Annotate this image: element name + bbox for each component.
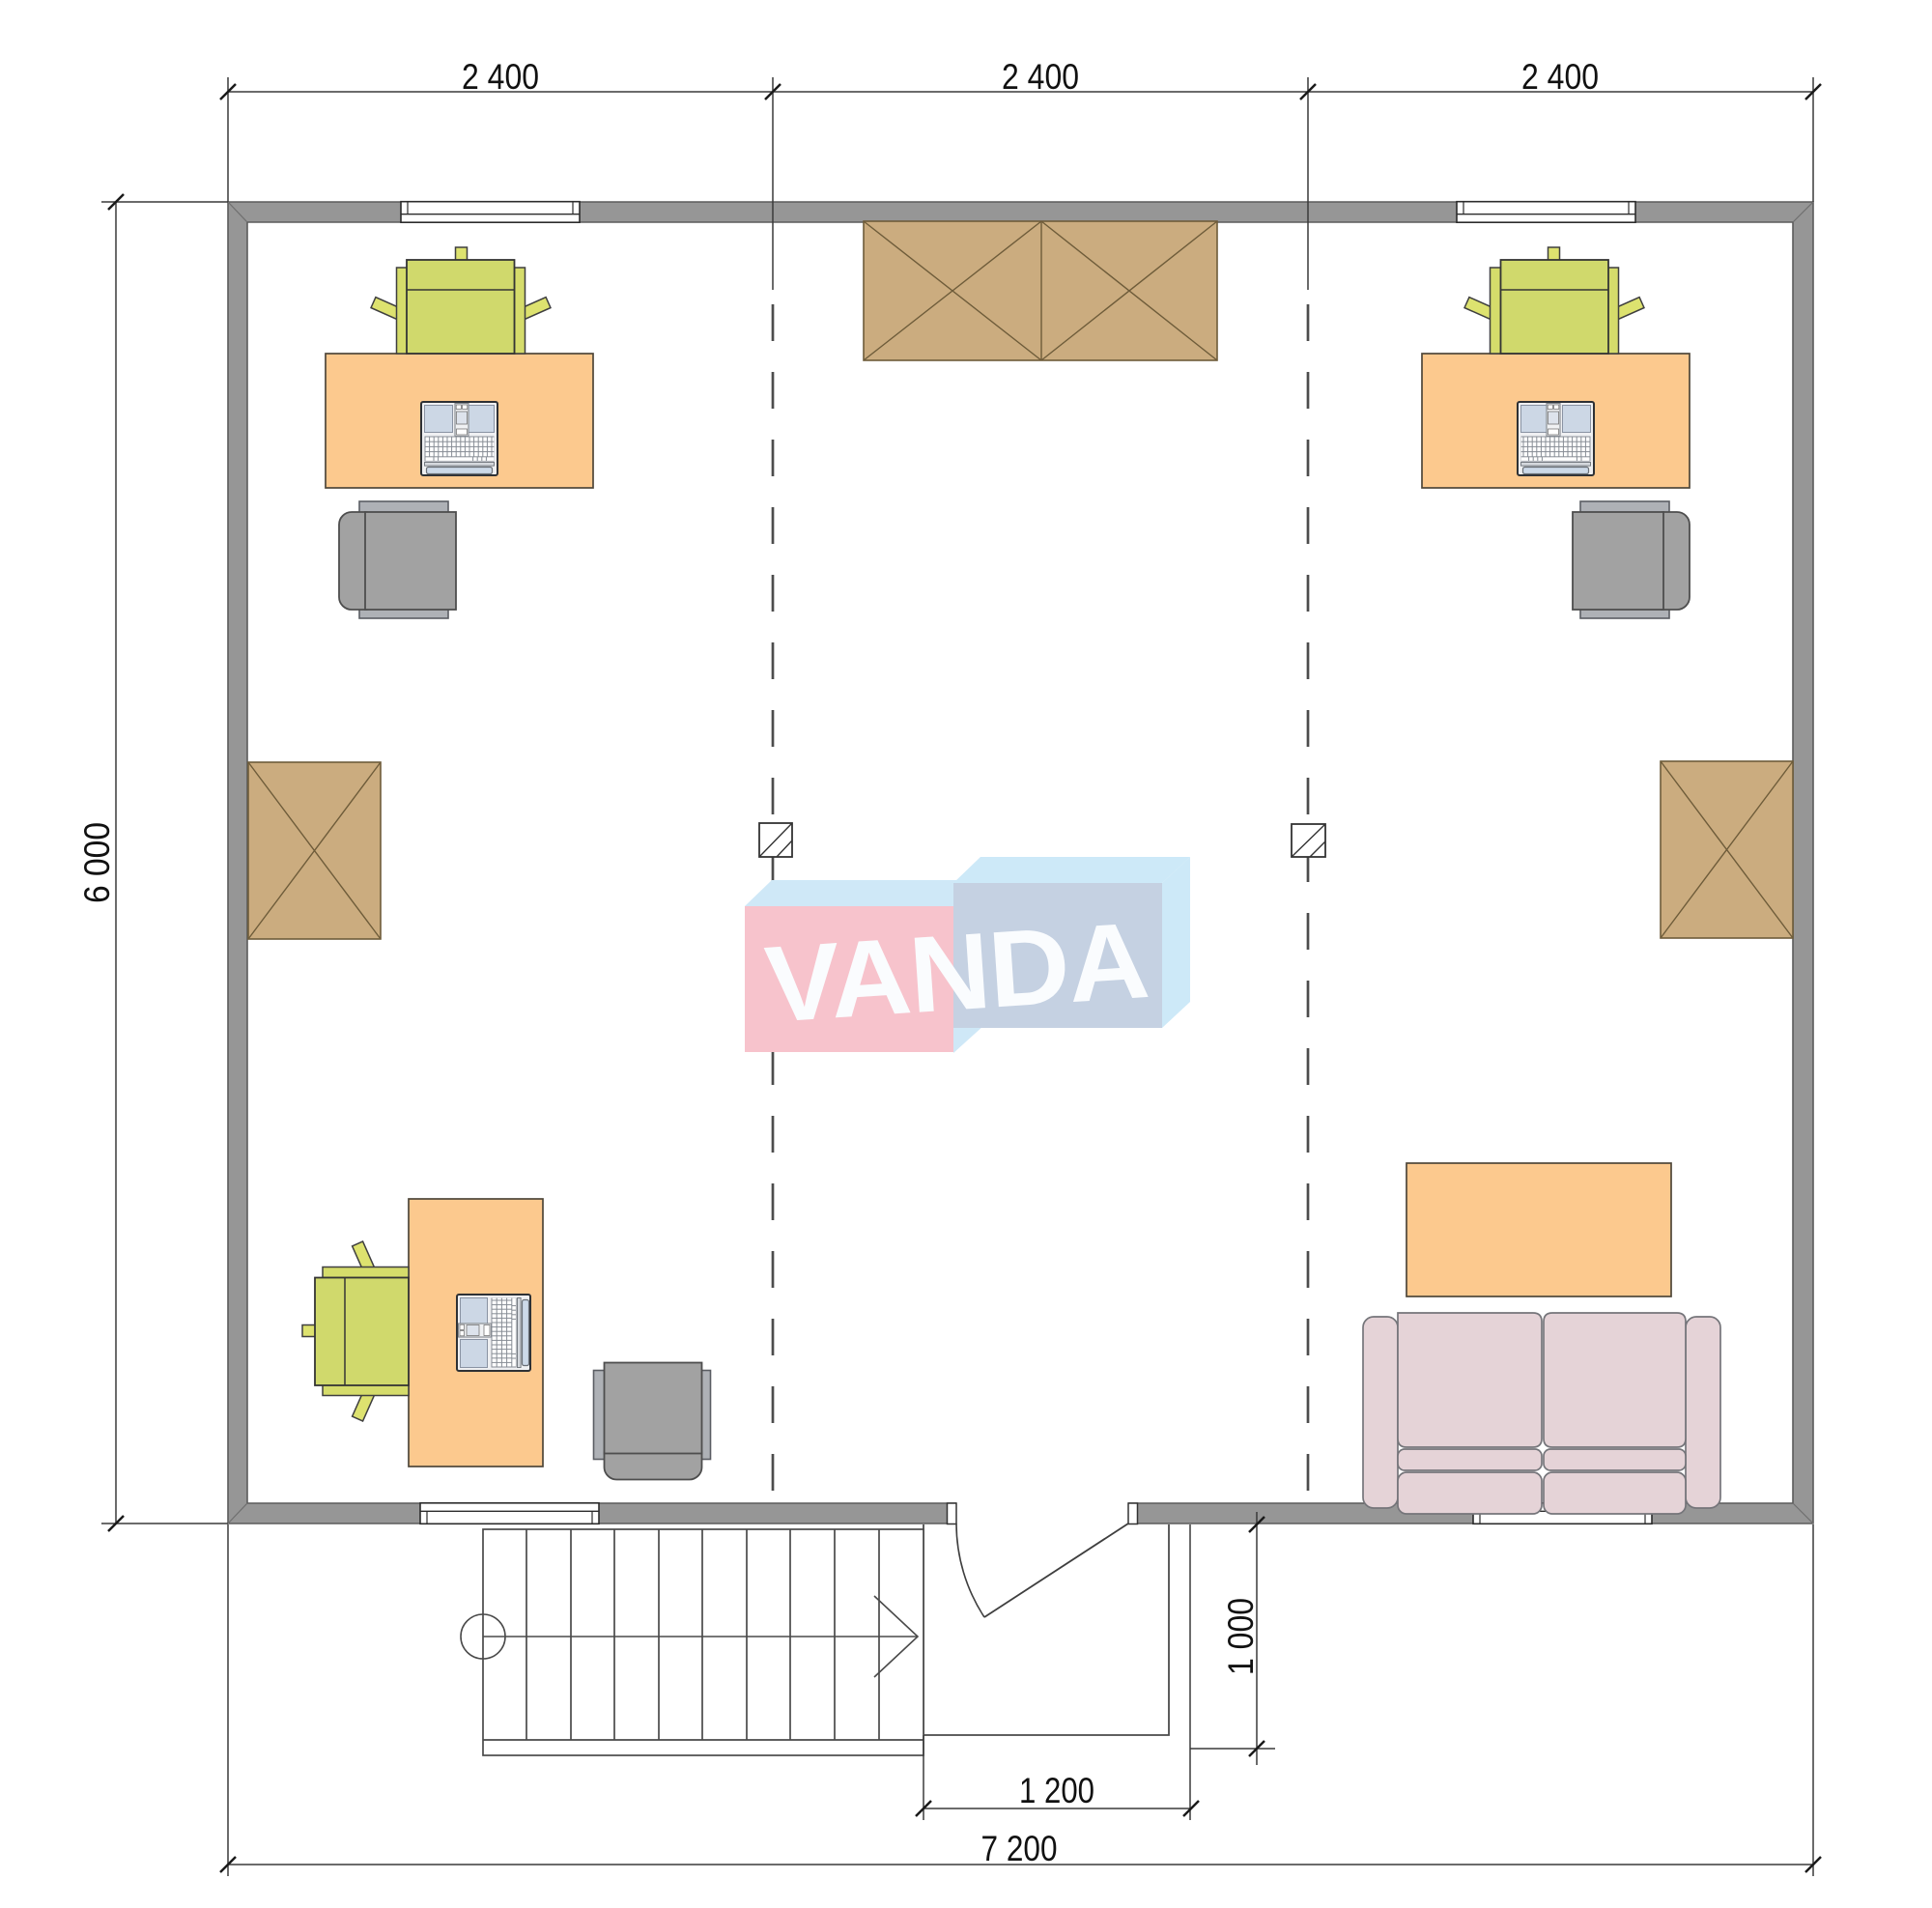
- svg-text:1 000: 1 000: [1221, 1598, 1261, 1675]
- svg-text:2 400: 2 400: [462, 57, 539, 97]
- svg-text:6 000: 6 000: [77, 822, 117, 903]
- svg-text:2 400: 2 400: [1521, 57, 1599, 97]
- svg-text:VANDA: VANDA: [761, 899, 1151, 1045]
- svg-text:1 200: 1 200: [1019, 1771, 1094, 1810]
- svg-text:2 400: 2 400: [1002, 57, 1079, 97]
- svg-text:7 200: 7 200: [981, 1829, 1058, 1868]
